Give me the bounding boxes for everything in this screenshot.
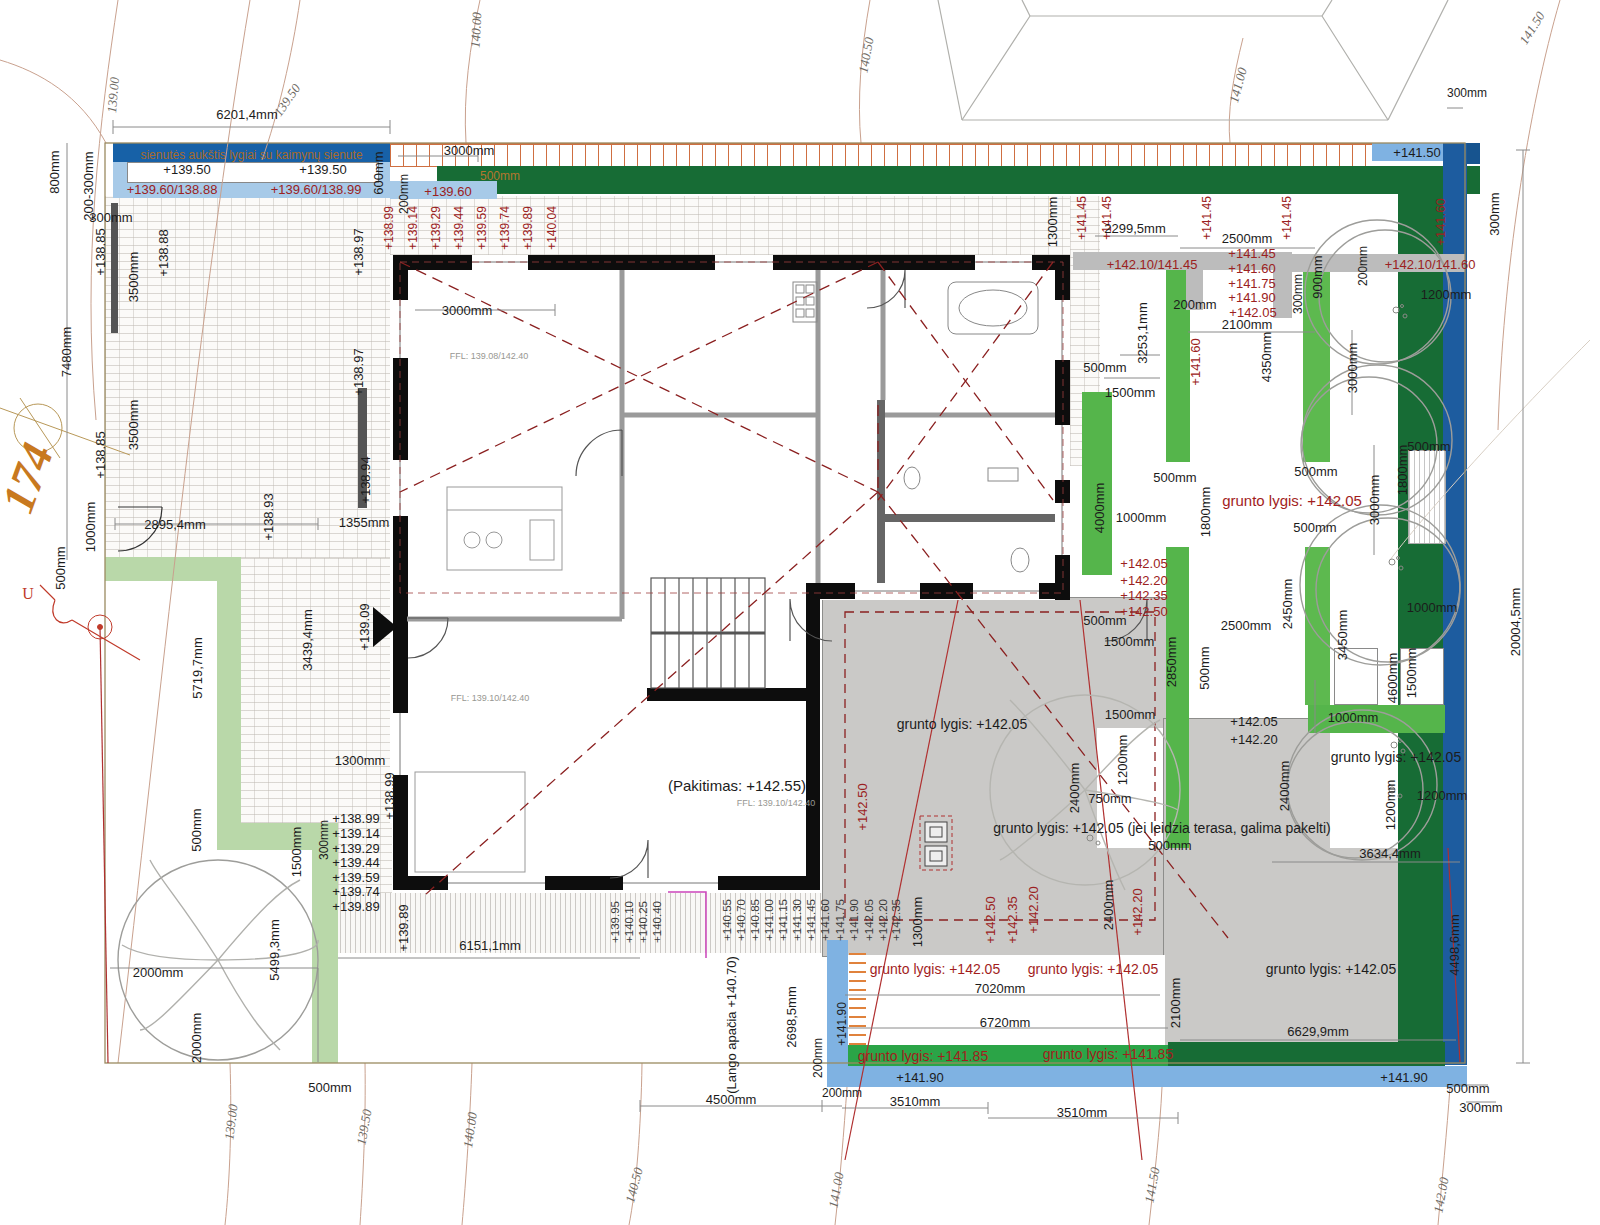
plan-label: +139.60/138.99 [271, 183, 362, 196]
plan-label: 2400mm [1068, 763, 1081, 814]
plan-label: 2500mm [1221, 619, 1272, 632]
plan-label: +142.35 [1006, 896, 1019, 943]
plan-label: FFL: 139.08/142.40 [450, 352, 529, 361]
plan-label: 1500mm [1105, 386, 1156, 399]
plan-label: +141.30 [792, 899, 804, 941]
plan-label: +141.45 [1076, 196, 1088, 240]
plan-label: 300mm [1292, 274, 1304, 314]
plan-label: 6720mm [980, 1016, 1031, 1029]
plan-label: 1000mm [1407, 601, 1458, 614]
plan-label: 2100mm [1169, 978, 1182, 1029]
labels-layer: 139.00139.50140.00140.50141.00141.50139.… [0, 0, 1600, 1225]
plan-label: +139.14 [407, 206, 419, 250]
plan-label: 200mm [1173, 298, 1216, 311]
plan-label: +139.29 [332, 842, 379, 855]
plan-label: +140.55 [722, 899, 734, 941]
plan-label: 800mm [48, 150, 61, 193]
plan-label: 200mm [812, 1038, 824, 1078]
plan-label: +141.50 [1393, 146, 1440, 159]
plan-label: +139.74 [332, 885, 379, 898]
plan-label: 500mm [1148, 839, 1191, 852]
plan-label: 6629,9mm [1287, 1025, 1348, 1038]
plan-label: +140.25 [638, 901, 650, 943]
plan-label: 140.00 [469, 12, 484, 48]
plan-label: 900mm [1311, 255, 1324, 298]
plan-label: +139.89 [522, 206, 534, 250]
plan-label: 1000mm [84, 502, 97, 553]
plan-label: +142.20 [1131, 888, 1144, 935]
plan-label: +140.04 [546, 206, 558, 250]
plan-label: 500mm [1407, 440, 1450, 453]
plan-label: +141.45 [1201, 196, 1213, 240]
plan-label: 4500mm [706, 1093, 757, 1106]
plan-label: +141.60 [1189, 338, 1202, 385]
plan-label: 2400mm [1102, 880, 1115, 931]
plan-label: 500mm [190, 808, 203, 851]
plan-label: +138.99 [332, 812, 379, 825]
plan-label: 1000mm [1328, 711, 1379, 724]
plan-label: +141.75 [1228, 277, 1275, 290]
plan-label: 5499,3mm [268, 919, 281, 980]
plan-label: grunto lygis: +142.05 [1266, 962, 1396, 976]
plan-label: 500mm [1293, 521, 1336, 534]
plan-label: 7480mm [60, 327, 73, 378]
plan-label: +140.70 [736, 899, 748, 941]
plan-label: +138.97 [352, 228, 365, 275]
plan-label: +142.50 [1120, 605, 1167, 618]
plan-label: 1500mm [1405, 648, 1418, 699]
plan-label: FFL: 139.10/142.40 [451, 694, 530, 703]
plan-label: +139.09 [358, 603, 371, 650]
plan-label: 2895,4mm [144, 518, 205, 531]
plan-label: +138.93 [262, 493, 275, 540]
plan-label: 2500mm [1222, 232, 1273, 245]
site-plan: sienutės aukštis lygiai su kaimynų sienu… [0, 0, 1600, 1225]
plan-label: 3634,4mm [1359, 847, 1420, 860]
plan-label: grunto lygis: +142.05 [897, 717, 1027, 731]
plan-label: +138.94 [359, 456, 372, 503]
plan-label: +139.14 [332, 827, 379, 840]
plan-label: 4600mm [1386, 653, 1399, 704]
plan-label: 1200mm [1116, 735, 1129, 786]
plan-label: 6201,4mm [216, 108, 277, 121]
plan-label: +141.90 [1228, 291, 1275, 304]
plan-label: 4000mm [1093, 483, 1106, 534]
plan-label: 750mm [1088, 792, 1131, 805]
plan-label: +142.20 [1027, 886, 1040, 933]
plan-label: 2100mm [1222, 318, 1273, 331]
plan-label: (Lango apačia +140.70) [725, 956, 738, 1094]
plan-label: 2450mm [1281, 579, 1294, 630]
plan-label: 1300mm [1046, 197, 1059, 248]
plan-label: +139.44 [332, 856, 379, 869]
plan-label: +141.45 [1228, 247, 1275, 260]
plan-label: +141.90 [836, 1002, 848, 1046]
plan-label: +142.20 [1230, 733, 1277, 746]
plan-label: 300mm [89, 211, 132, 224]
plan-label: 200mm [822, 1087, 862, 1099]
plan-label: 2000mm [133, 966, 184, 979]
plan-label: 141.00 [826, 1171, 845, 1208]
plan-label: 2400mm [1278, 761, 1291, 812]
plan-label: 500mm [1198, 646, 1211, 689]
plan-label: 4498,6mm [1448, 914, 1461, 975]
plan-label: 140.50 [856, 36, 875, 73]
plan-label: 141.00 [1227, 66, 1249, 104]
plan-label: 600mm [372, 151, 385, 194]
plan-label: 1500mm [1105, 708, 1156, 721]
plan-label: 4350mm [1260, 332, 1273, 383]
plan-label: 20004,5mm [1509, 588, 1522, 657]
plan-label: 5719,7mm [191, 637, 204, 698]
plan-label: 1200mm [1421, 288, 1472, 301]
plan-label: +138.85 [94, 228, 107, 275]
plan-label: +138.88 [157, 229, 170, 276]
plan-label: +142.50 [856, 783, 869, 830]
plan-label: 3439,4mm [301, 609, 314, 670]
plan-label: +139.89 [397, 904, 410, 951]
plan-label: +142.05 [864, 899, 876, 941]
plan-label: 1200mm [1417, 789, 1468, 802]
plan-label: +141.60 [820, 899, 832, 941]
plan-label: 300mm [318, 820, 330, 860]
plan-label: U [22, 586, 34, 602]
plan-label: 140.00 [461, 1111, 479, 1148]
plan-label: 300mm [1447, 87, 1487, 99]
plan-label: 500mm [54, 546, 67, 589]
plan-label: 2850mm [1165, 637, 1178, 688]
plan-label: +139.60/138.88 [127, 183, 218, 196]
plan-label: 1000mm [1116, 511, 1167, 524]
plan-label: 6151,1mm [459, 939, 520, 952]
plan-label: 141.50 [1142, 1166, 1161, 1203]
plan-label: 3500mm [127, 252, 140, 303]
plan-label: +141.75 [835, 899, 847, 941]
plan-label: 2299,5mm [1104, 222, 1165, 235]
plan-label: +139.50 [163, 163, 210, 176]
plan-label: 3500mm [127, 400, 140, 451]
plan-label: +138.97 [352, 348, 365, 395]
plan-label: 500mm [308, 1081, 351, 1094]
plan-label: FFL: 139.10/142.40 [737, 799, 816, 808]
plan-label: 300mm [1488, 192, 1501, 235]
plan-label: +140.85 [750, 899, 762, 941]
plan-label: 500mm [480, 170, 520, 182]
plan-label: (Pakitimas: +142.55) [668, 778, 806, 793]
plan-label: grunto lygis: +141.85 [1043, 1047, 1173, 1061]
plan-label: +139.59 [332, 871, 379, 884]
plan-label: 3510mm [1057, 1106, 1108, 1119]
plan-label: +141.60 [1434, 198, 1447, 245]
plan-label: grunto lygis: +142.05 [1028, 962, 1158, 976]
plan-label: 500mm [1446, 1082, 1489, 1095]
plan-label: +139.74 [499, 206, 511, 250]
plan-label: +142.35 [891, 899, 903, 941]
plan-label: 139.00 [105, 77, 121, 114]
plan-label: +141.90 [849, 899, 861, 941]
plan-label: 2698,5mm [785, 986, 798, 1047]
plan-label: +139.44 [453, 206, 465, 250]
plan-label: +141.45 [1281, 196, 1293, 240]
plan-label: +142.50 [984, 896, 997, 943]
plan-label: 3510mm [890, 1095, 941, 1108]
plan-label: +141.90 [1380, 1071, 1427, 1084]
plan-label: 3000mm [1368, 475, 1381, 526]
plan-label: 1800mm [1199, 487, 1212, 538]
plan-label: 500mm [1153, 471, 1196, 484]
plan-label: +139.59 [476, 206, 488, 250]
plan-label: 3253,1mm [1136, 302, 1149, 363]
plan-label: 140.50 [623, 1166, 645, 1204]
plan-label: +142.10/141.45 [1107, 258, 1198, 271]
plan-label: +142.10/141.60 [1385, 258, 1476, 271]
plan-label: 139.00 [222, 1103, 239, 1140]
plan-label: +138.99 [383, 772, 396, 819]
plan-label: 1355mm [339, 516, 390, 529]
plan-label: 7020mm [975, 982, 1026, 995]
plan-label: +141.00 [764, 899, 776, 941]
plan-label: +142.35 [1120, 589, 1167, 602]
plan-label: 300mm [1459, 1101, 1502, 1114]
plan-label: +141.15 [778, 899, 790, 941]
plan-label: +140.10 [624, 901, 636, 943]
plan-label: +138.99 [383, 206, 395, 250]
plan-label: 141.50 [1517, 9, 1547, 46]
plan-label: 3000mm [444, 144, 495, 157]
plan-label: +139.89 [332, 900, 379, 913]
plan-label: 1300mm [335, 754, 386, 767]
plan-label: 1300mm [911, 897, 924, 948]
plan-label: +140.40 [652, 901, 664, 943]
plan-label: 500mm [1083, 361, 1126, 374]
plan-label: grunto lygis: +142.05 [1331, 750, 1461, 764]
plan-label: 1200mm [1384, 780, 1397, 831]
plan-label: 2000mm [190, 1013, 203, 1064]
plan-label: 3000mm [1346, 343, 1359, 394]
plan-label: 3450mm [1336, 610, 1349, 661]
plan-label: 1500mm [1104, 635, 1155, 648]
plan-label: grunto lygis: +142.05 (jei leidzia teras… [993, 821, 1330, 835]
plan-label: 500mm [1294, 465, 1337, 478]
plan-label: 500mm [1083, 614, 1126, 627]
plan-label: +142.05 [1120, 557, 1167, 570]
plan-label: grunto lygis: +141.85 [858, 1049, 988, 1063]
plan-label: grunto lygis: +142.05 [1222, 493, 1362, 508]
plan-label: grunto lygis: +142.05 [870, 962, 1000, 976]
plan-label: 1500mm [290, 827, 303, 878]
plan-label: +142.05 [1230, 715, 1277, 728]
plan-label: 200mm [1357, 246, 1369, 286]
plan-label: 174 [0, 438, 61, 519]
plan-label: 3000mm [442, 304, 493, 317]
plan-label: 142.00 [1431, 1176, 1450, 1213]
plan-label: +141.45 [806, 899, 818, 941]
plan-label: +141.60 [1228, 262, 1275, 275]
plan-label: +139.95 [610, 901, 622, 943]
plan-label: 139.50 [354, 1108, 373, 1145]
plan-label: +142.20 [1120, 574, 1167, 587]
plan-label: +139.50 [299, 163, 346, 176]
plan-label: +139.29 [430, 206, 442, 250]
plan-label: +142.20 [878, 899, 890, 941]
plan-label: +138.85 [94, 431, 107, 478]
plan-label: +141.90 [896, 1071, 943, 1084]
plan-label: +139.60 [424, 185, 471, 198]
